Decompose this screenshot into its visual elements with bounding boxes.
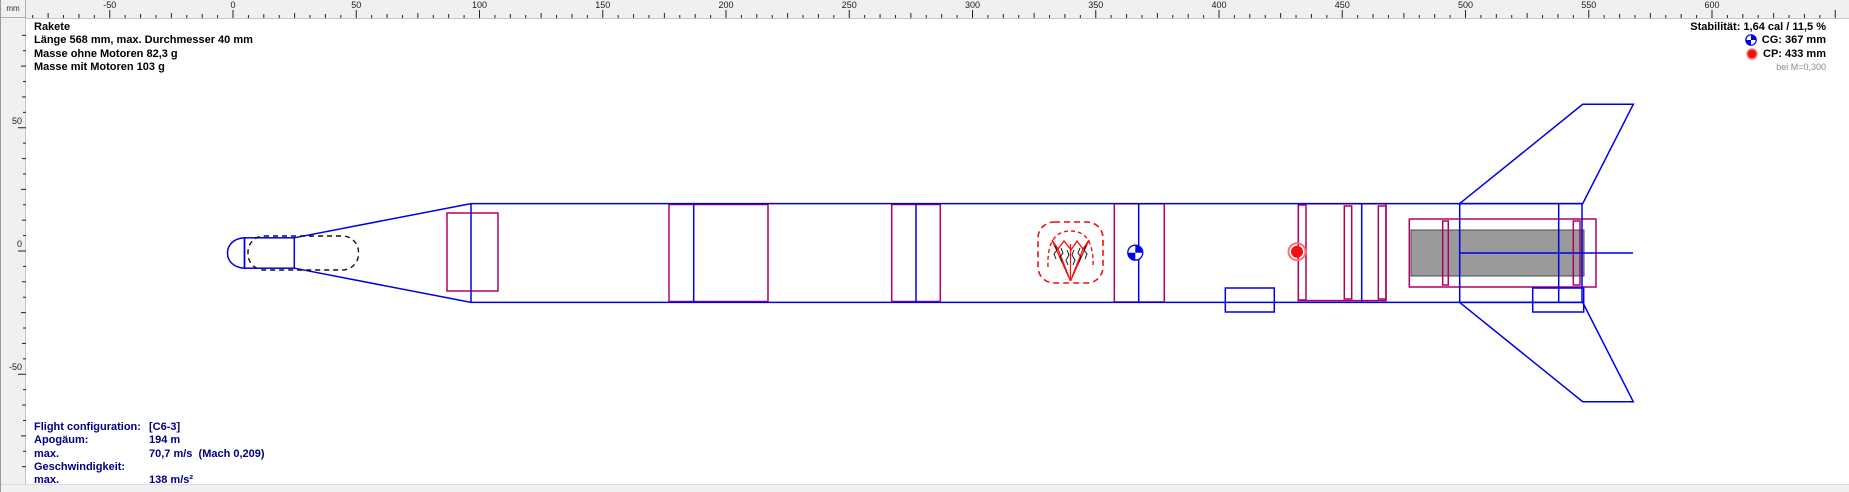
flight-config-label: Flight configuration: <box>34 421 149 434</box>
nose-coupler[interactable] <box>447 213 498 291</box>
flight-row: Apogäum: 194 m <box>34 434 265 447</box>
stability-condition: bei M=0,300 <box>1690 62 1826 72</box>
fin-lower[interactable] <box>1460 302 1634 401</box>
transition-top[interactable] <box>294 204 471 238</box>
flight-row: max. Geschwindigkeit: 70,7 m/s (Mach 0,2… <box>34 448 265 475</box>
cg-value: CG: 367 mm <box>1762 34 1826 46</box>
cg-icon <box>1745 34 1757 46</box>
apogee-value: 194 m <box>149 434 180 447</box>
parachute-icon[interactable] <box>1038 222 1103 283</box>
cg-marker <box>1128 245 1143 260</box>
centering-ring-3[interactable] <box>1378 206 1386 299</box>
mass-with-motors: Masse mit Motoren 103 g <box>34 61 253 74</box>
apogee-label: Apogäum: <box>34 434 149 447</box>
cp-marker <box>1289 243 1306 260</box>
rocket-name: Rakete <box>34 21 253 34</box>
rocket-drawing <box>1 0 1849 492</box>
aft-inner-tube[interactable] <box>1298 204 1386 301</box>
transition-bottom[interactable] <box>294 268 471 302</box>
nose-mass-component[interactable] <box>248 236 359 270</box>
flight-config-value: [C6-3] <box>149 421 180 434</box>
flight-results: Flight configuration: [C6-3] Apogäum: 19… <box>34 421 265 492</box>
rocket-dimensions: Länge 568 mm, max. Durchmesser 40 mm <box>34 34 253 47</box>
fin-upper[interactable] <box>1460 104 1634 203</box>
max-velocity-label: max. Geschwindigkeit: <box>34 448 149 475</box>
nose-tip[interactable] <box>228 238 245 268</box>
flight-row: Flight configuration: [C6-3] <box>34 421 265 434</box>
tube-coupler-1[interactable] <box>669 205 768 302</box>
centering-ring-2[interactable] <box>1344 206 1351 299</box>
max-velocity-value: 70,7 m/s (Mach 0,209) <box>149 448 265 475</box>
stability-info: Stabilität: 1,64 cal / 11,5 % CG: 367 mm… <box>1690 21 1826 72</box>
cp-value: CP: 433 mm <box>1763 48 1826 60</box>
ruler-unit-label: mm <box>1 0 26 18</box>
mass-without-motors: Masse ohne Motoren 82,3 g <box>34 48 253 61</box>
rocket-design-view: -50050100150200250300350400450500550600 … <box>0 0 1849 492</box>
cp-icon <box>1746 48 1758 60</box>
stability-value: Stabilität: 1,64 cal / 11,5 % <box>1690 21 1826 33</box>
rocket-info: Rakete Länge 568 mm, max. Durchmesser 40… <box>34 21 253 75</box>
launch-lug-1[interactable] <box>1225 288 1274 312</box>
horizontal-scrollbar[interactable] <box>1 484 1849 492</box>
